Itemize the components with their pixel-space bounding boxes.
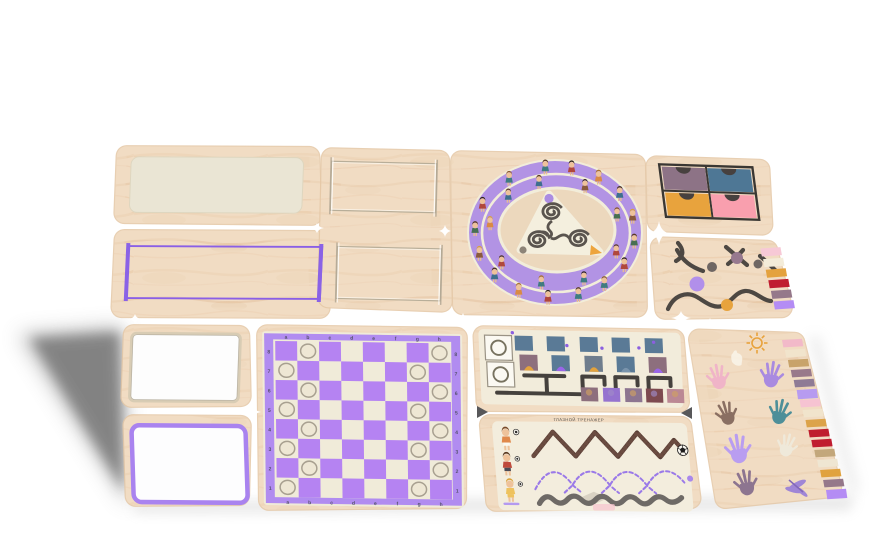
svg-text:a: a: [286, 500, 289, 506]
svg-text:4: 4: [455, 430, 458, 436]
svg-text:6: 6: [455, 391, 458, 397]
svg-text:8: 8: [454, 352, 457, 358]
svg-text:ГЛАЗНОЙ ТРЕНАЖЕР: ГЛАЗНОЙ ТРЕНАЖЕР: [553, 417, 604, 422]
svg-text:g: g: [416, 337, 419, 343]
svg-text:6: 6: [268, 388, 271, 394]
svg-text:h: h: [438, 337, 441, 343]
svg-text:1: 1: [456, 489, 459, 495]
svg-text:2: 2: [269, 466, 272, 472]
svg-text:g: g: [418, 502, 421, 508]
svg-text:8: 8: [267, 349, 270, 355]
svg-text:2: 2: [456, 469, 459, 475]
svg-text:5: 5: [455, 411, 458, 417]
svg-text:d: d: [350, 336, 353, 342]
svg-text:c: c: [328, 335, 331, 341]
svg-text:a: a: [285, 335, 288, 341]
svg-text:c: c: [330, 500, 333, 506]
svg-text:3: 3: [268, 447, 271, 453]
svg-text:e: e: [372, 336, 375, 342]
svg-text:e: e: [374, 501, 377, 507]
svg-text:3: 3: [455, 450, 458, 456]
svg-text:7: 7: [455, 372, 458, 378]
svg-text:5: 5: [268, 408, 271, 414]
svg-text:1: 1: [269, 486, 272, 492]
svg-text:b: b: [308, 500, 311, 506]
svg-text:4: 4: [268, 427, 271, 433]
svg-text:b: b: [306, 335, 309, 341]
svg-text:h: h: [440, 502, 443, 508]
svg-text:7: 7: [268, 369, 271, 375]
svg-text:d: d: [352, 501, 355, 507]
